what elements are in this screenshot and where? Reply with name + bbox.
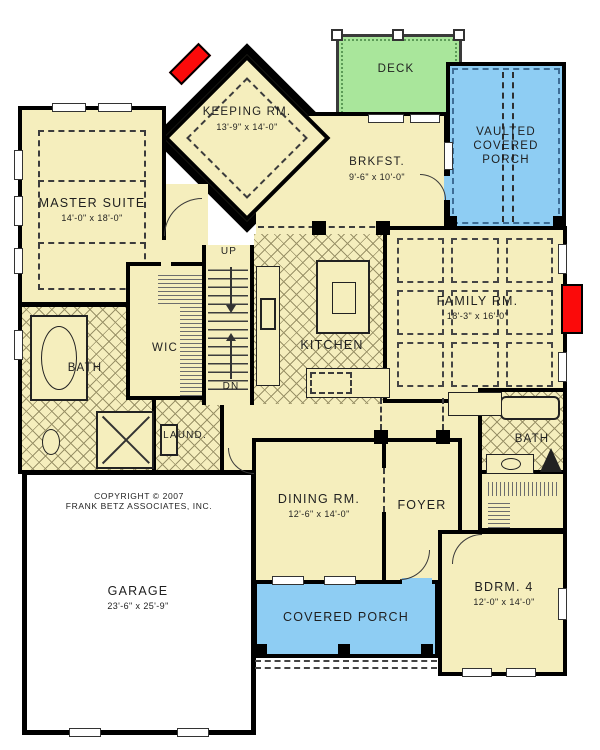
porch-post — [553, 216, 564, 227]
sink — [501, 458, 521, 470]
label-keeping-room: KEEPING RM. 13'-9" x 14'-0" — [177, 106, 317, 133]
column-post — [312, 221, 326, 235]
coffer-cell — [451, 342, 498, 387]
copyright-line2: FRANK BETZ ASSOCIATES, INC. — [34, 501, 244, 511]
column-post — [436, 430, 450, 444]
vanity — [486, 454, 534, 474]
fireplace-family — [561, 284, 583, 334]
garage-door-panel — [69, 728, 101, 737]
laundry-name: LAUND. — [153, 430, 217, 442]
door-opening — [161, 240, 171, 270]
garage-dims: 23'-6" x 25'-9" — [38, 601, 238, 612]
deck-name: DECK — [346, 63, 446, 77]
toilet — [42, 429, 60, 455]
master-ceiling-line — [38, 180, 146, 182]
bathtub2 — [500, 396, 560, 420]
kitchen-counter-dashed — [310, 372, 352, 394]
window — [14, 330, 23, 360]
label-stairs-up: UP — [216, 246, 242, 258]
wic-name: WIC — [135, 342, 195, 356]
window — [52, 103, 86, 112]
kitchen-island — [316, 260, 370, 334]
label-covered-porch: COVERED PORCH — [257, 610, 435, 625]
dining-dims: 12'-6" x 14'-0" — [252, 509, 386, 520]
window — [272, 576, 304, 585]
shower — [96, 411, 154, 469]
window — [14, 150, 23, 180]
window — [324, 576, 356, 585]
breakfast-name: BRKFST. — [307, 156, 447, 170]
window — [410, 114, 440, 123]
hall-built-in — [448, 392, 502, 416]
window — [506, 668, 536, 677]
closet-shelves — [158, 272, 202, 304]
window — [98, 103, 132, 112]
deck-post — [392, 29, 404, 41]
family-name: FAMILY RM. — [400, 294, 555, 309]
copyright-notice: COPYRIGHT © 2007 FRANK BETZ ASSOCIATES, … — [34, 491, 244, 511]
keeping-dims: 13'-9" x 14'-0" — [177, 122, 317, 133]
stair-dn-arrow — [230, 341, 232, 379]
stair-up-arrowhead — [226, 305, 236, 313]
bdrm4-dims: 12'-0" x 14'-0" — [440, 597, 568, 608]
deck-post — [331, 29, 343, 41]
toilet2 — [540, 448, 562, 472]
label-foyer: FOYER — [384, 498, 460, 513]
family-dims: 18'-3" x 16'-0" — [400, 311, 555, 322]
bdrm4-name: BDRM. 4 — [440, 580, 568, 595]
porch-post — [255, 644, 267, 656]
label-wic: WIC — [135, 342, 195, 356]
porch-steps — [255, 660, 437, 669]
vaulted-porch-name: VAULTED COVERED PORCH — [457, 126, 555, 167]
window — [558, 352, 567, 382]
kitchen-cooktop — [332, 282, 356, 314]
column-post — [374, 430, 388, 444]
covered-porch-name: COVERED PORCH — [257, 610, 435, 625]
label-family-room: FAMILY RM. 18'-3" x 16'-0" — [400, 294, 555, 322]
label-laundry: LAUND. — [153, 430, 217, 442]
bdrm4-closet — [478, 470, 567, 532]
bathtub — [30, 315, 88, 401]
garage-door-panel — [177, 728, 209, 737]
closet-shelves — [488, 482, 560, 496]
window — [462, 668, 492, 677]
breakfast-dims: 9'-6" x 10'-0" — [307, 172, 447, 183]
coffer-cell — [451, 238, 498, 283]
label-bath2: BATH — [494, 433, 570, 447]
label-kitchen: KITCHEN — [288, 338, 376, 353]
foyer-name: FOYER — [384, 498, 460, 513]
dining-name: DINING RM. — [252, 492, 386, 507]
label-breakfast: BRKFST. 9'-6" x 10'-0" — [307, 156, 447, 183]
label-garage: GARAGE 23'-6" x 25'-9" — [38, 584, 238, 612]
master-dims: 14'-0" x 18'-0" — [22, 213, 162, 224]
stair-up-arrow — [230, 267, 232, 307]
window — [14, 248, 23, 274]
garage-name: GARAGE — [38, 584, 238, 599]
coffer-cell — [397, 342, 444, 387]
fireplace-keeping — [169, 43, 211, 85]
kitchen-name: KITCHEN — [288, 338, 376, 353]
stairs-dn-text: DN — [217, 381, 245, 393]
kitchen-oven-stack — [260, 298, 276, 330]
foyer-cased-line — [442, 398, 444, 430]
porch-post — [338, 644, 350, 656]
master-name: MASTER SUITE — [22, 196, 162, 211]
bath2-name: BATH — [494, 433, 570, 447]
coffer-cell — [397, 238, 444, 283]
walk-in-closet-room — [126, 262, 208, 400]
deck-area — [336, 34, 462, 122]
label-dining-room: DINING RM. 12'-6" x 14'-0" — [252, 492, 386, 520]
deck-post — [453, 29, 465, 41]
coffer-cell — [506, 238, 553, 283]
window — [558, 244, 567, 274]
keeping-name: KEEPING RM. — [177, 106, 317, 120]
label-master-bath: BATH — [45, 362, 125, 376]
copyright-line1: COPYRIGHT © 2007 — [34, 491, 244, 501]
stair-treads — [208, 263, 248, 397]
porch-post — [421, 644, 433, 656]
porch-post — [446, 216, 457, 227]
bath1-name: BATH — [45, 362, 125, 376]
master-ceiling-line — [38, 242, 146, 244]
foyer-cased-line — [380, 398, 382, 430]
closet-shelves — [488, 500, 510, 528]
stairs-up-text: UP — [216, 246, 242, 258]
label-bedroom4: BDRM. 4 12'-0" x 14'-0" — [440, 580, 568, 608]
bathtub-basin — [41, 326, 77, 390]
label-stairs-dn: DN — [217, 381, 245, 393]
coffer-cell — [506, 342, 553, 387]
label-vaulted-porch: VAULTED COVERED PORCH — [457, 126, 555, 167]
floor-plan: DECK VAULTED COVERED PORCH KEEPING RM. 1… — [0, 0, 600, 750]
stair-dn-arrowhead — [226, 333, 236, 341]
column-post — [376, 221, 390, 235]
label-deck: DECK — [346, 63, 446, 77]
window — [368, 114, 404, 123]
label-master-suite: MASTER SUITE 14'-0" x 18'-0" — [22, 196, 162, 224]
